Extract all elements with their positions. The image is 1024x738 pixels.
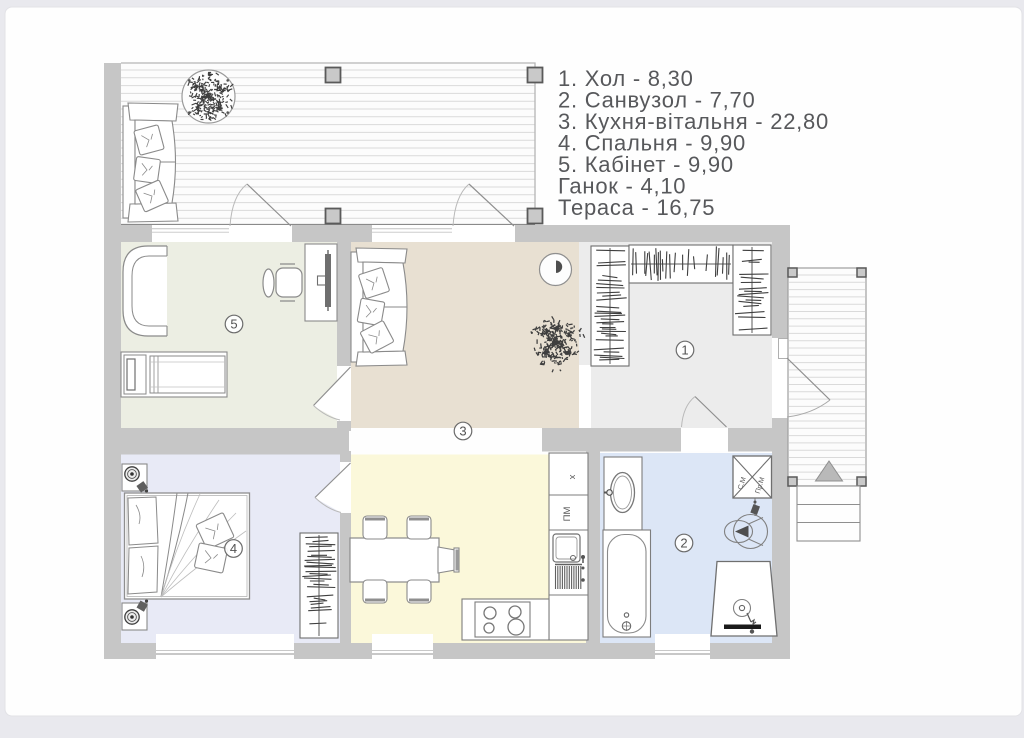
svg-text:ПМ: ПМ [562, 507, 573, 522]
svg-text:х: х [567, 475, 578, 480]
svg-text:Тераса - 16,75: Тераса - 16,75 [558, 195, 715, 220]
svg-text:2: 2 [680, 536, 687, 551]
svg-text:4: 4 [230, 541, 237, 556]
svg-text:5: 5 [230, 317, 237, 332]
svg-text:1: 1 [681, 343, 688, 358]
svg-text:3: 3 [459, 424, 466, 439]
